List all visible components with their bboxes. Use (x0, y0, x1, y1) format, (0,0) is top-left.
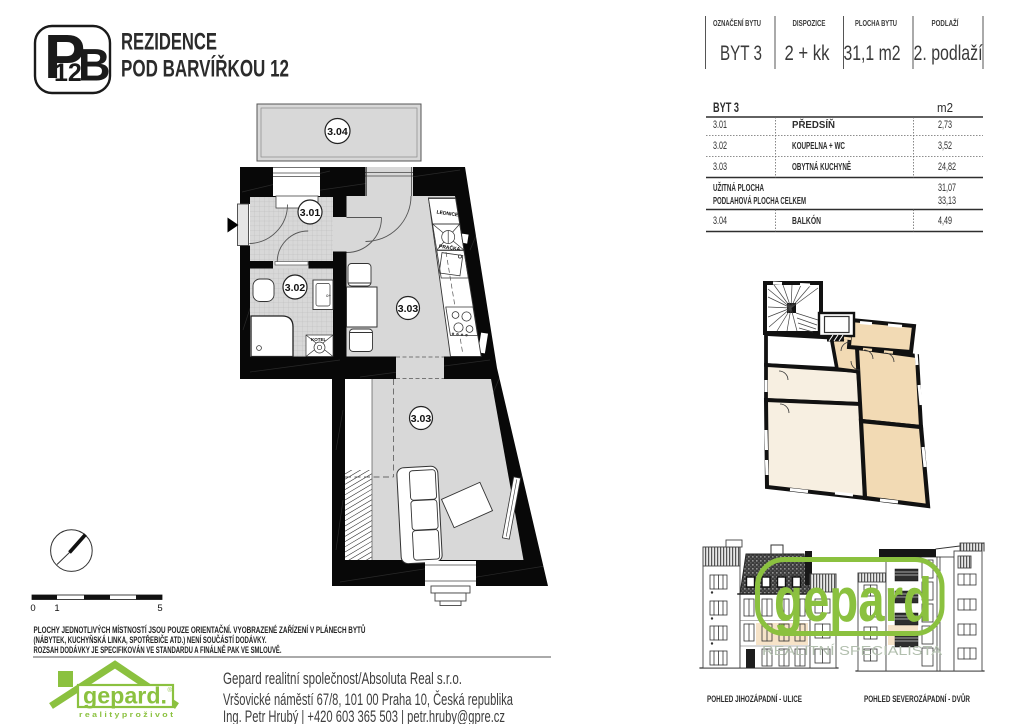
svg-text:0: 0 (30, 603, 35, 614)
svg-text:KOTEL: KOTEL (311, 337, 327, 342)
svg-text:KOUPELNA + WC: KOUPELNA + WC (792, 140, 845, 152)
svg-text:OBYTNÁ KUCHYNĚ: OBYTNÁ KUCHYNĚ (792, 160, 851, 173)
svg-text:B: B (78, 40, 111, 91)
svg-text:POHLED JIHOZÁPADNÍ - ULICE: POHLED JIHOZÁPADNÍ - ULICE (707, 694, 802, 705)
svg-text:Gepard realitní společnost/Abs: Gepard realitní společnost/Absoluta Real… (223, 669, 462, 688)
svg-text:PODLAHOVÁ PLOCHA CELKEM: PODLAHOVÁ PLOCHA CELKEM (713, 194, 806, 207)
svg-text:2. podlaží: 2. podlaží (914, 41, 983, 65)
svg-text:POD BARVÍŘKOU 12: POD BARVÍŘKOU 12 (121, 55, 289, 83)
svg-text:r e a l i t y p r o ž i v: r e a l i t y p r o ž i v o t (79, 710, 174, 719)
svg-text:BYT 3: BYT 3 (713, 99, 739, 115)
svg-text:REZIDENCE: REZIDENCE (121, 29, 217, 56)
svg-text:3.03: 3.03 (398, 303, 419, 315)
svg-text:Ing. Petr Hrubý | +420 603 365: Ing. Petr Hrubý | +420 603 365 503 | pet… (223, 707, 505, 724)
svg-text:PLOCHA BYTU: PLOCHA BYTU (855, 19, 897, 28)
svg-text:OZNAČENÍ BYTU: OZNAČENÍ BYTU (713, 19, 761, 28)
svg-text:33,13: 33,13 (938, 195, 956, 207)
svg-text:3.04: 3.04 (713, 215, 727, 227)
svg-text:24,82: 24,82 (938, 161, 956, 173)
svg-text:DISPOZICE: DISPOZICE (793, 19, 827, 28)
svg-text:4,49: 4,49 (938, 215, 952, 227)
svg-text:ROZSAH DODÁVKY JE SPECIFIKOVÁN: ROZSAH DODÁVKY JE SPECIFIKOVÁN VE STANDA… (34, 644, 282, 655)
svg-text:5: 5 (157, 603, 162, 614)
svg-text:BYT 3: BYT 3 (720, 41, 762, 65)
svg-text:3.02: 3.02 (285, 282, 306, 294)
svg-text:3.03: 3.03 (713, 161, 727, 173)
svg-text:PODLAŽÍ: PODLAŽÍ (932, 19, 960, 28)
svg-text:31,07: 31,07 (938, 182, 956, 194)
svg-text:3.01: 3.01 (713, 119, 727, 131)
svg-text:m2: m2 (937, 100, 953, 115)
svg-text:2 + kk: 2 + kk (785, 41, 830, 65)
svg-text:3.02: 3.02 (713, 140, 727, 152)
svg-text:UŽITNÁ PLOCHA: UŽITNÁ PLOCHA (713, 181, 764, 194)
svg-text:2,73: 2,73 (938, 119, 952, 131)
svg-text:BALKÓN: BALKÓN (792, 214, 821, 227)
svg-text:gepard.: gepard. (83, 683, 167, 709)
svg-text:1: 1 (54, 603, 59, 614)
svg-text:PŘEDSÍŇ: PŘEDSÍŇ (792, 118, 835, 131)
svg-text:o+: o+ (326, 293, 332, 298)
svg-text:3,52: 3,52 (938, 140, 952, 152)
svg-text:gepard: gepard (774, 566, 932, 635)
svg-text:POHLED SEVEROZÁPADNÍ - DVŮR: POHLED SEVEROZÁPADNÍ - DVŮR (864, 693, 970, 705)
svg-text:3.04: 3.04 (327, 126, 348, 138)
svg-text:REALITNÍ SPECIALISTA: REALITNÍ SPECIALISTA (762, 643, 943, 658)
svg-text:3.03: 3.03 (411, 413, 432, 425)
svg-text:®: ® (168, 687, 173, 694)
svg-text:31,1 m2: 31,1 m2 (844, 41, 901, 65)
svg-text:3.01: 3.01 (300, 207, 321, 219)
